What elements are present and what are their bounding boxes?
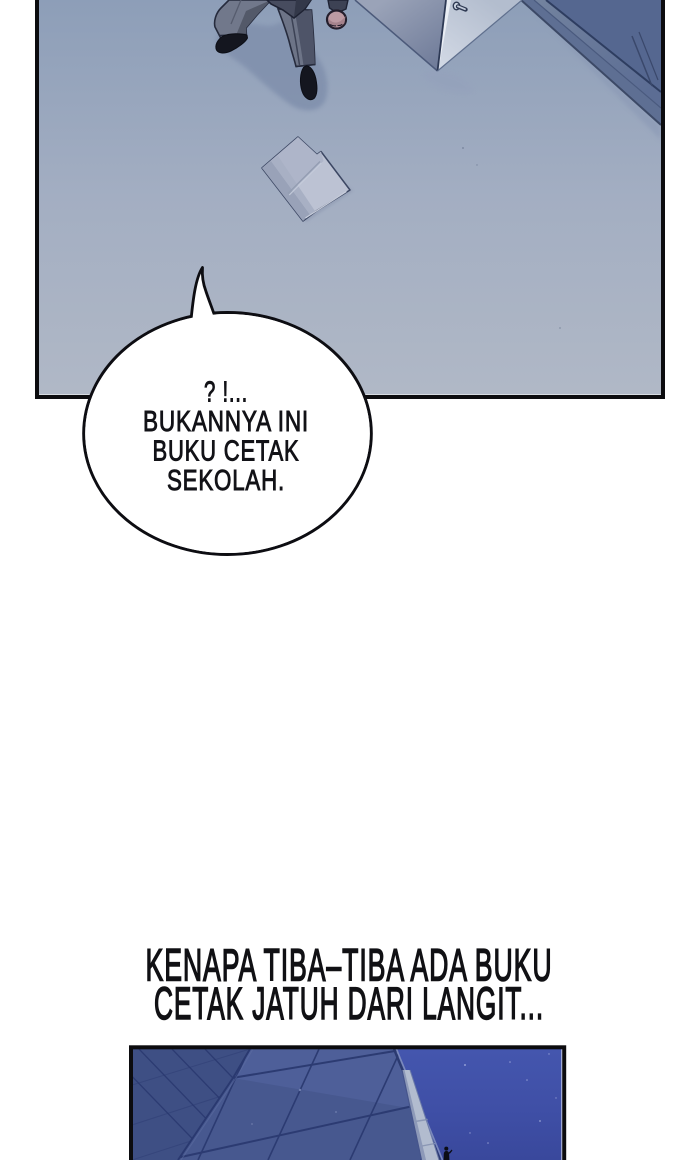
svg-text:? !...: ? !... (204, 377, 248, 409)
svg-text:SEKOLAH.: SEKOLAH. (167, 465, 285, 497)
svg-text:BUKU CETAK: BUKU CETAK (153, 436, 300, 468)
svg-text:CETAK JATUH DARI LANGIT...: CETAK JATUH DARI LANGIT... (154, 978, 544, 1029)
svg-text:BUKANNYA INI: BUKANNYA INI (143, 406, 309, 438)
